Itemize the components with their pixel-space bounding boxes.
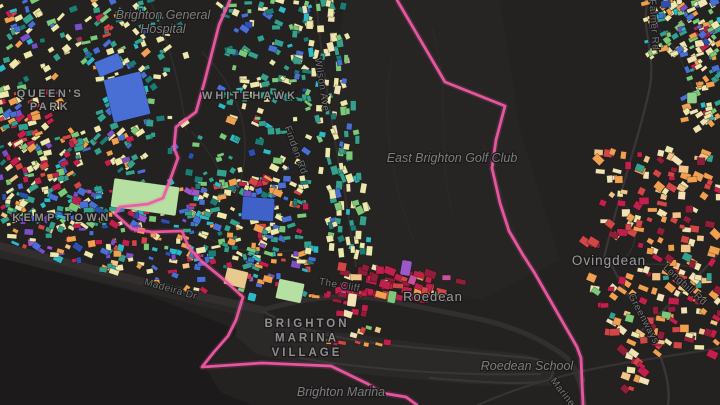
building [359, 216, 367, 226]
building [308, 40, 315, 47]
building [329, 243, 335, 251]
building [661, 0, 671, 8]
building [114, 72, 119, 76]
building [609, 328, 619, 336]
building [297, 260, 306, 264]
building [442, 275, 451, 280]
building [661, 311, 671, 319]
building [153, 74, 161, 79]
building [163, 67, 170, 72]
building [7, 234, 17, 239]
building [209, 258, 216, 265]
building [356, 172, 362, 180]
building [344, 131, 349, 138]
building [189, 203, 196, 207]
building [99, 267, 107, 273]
building [350, 246, 355, 253]
building [308, 257, 316, 262]
building [638, 242, 644, 248]
building [74, 23, 83, 31]
building [2, 194, 6, 200]
building [350, 274, 361, 280]
building [363, 342, 369, 347]
cyan-building [247, 292, 257, 302]
building [346, 123, 352, 130]
building [199, 199, 205, 205]
building [128, 257, 134, 262]
building [697, 81, 703, 85]
building [700, 102, 706, 108]
building [366, 246, 373, 256]
building [673, 342, 682, 349]
building [652, 306, 658, 314]
building [657, 149, 665, 157]
building [707, 273, 712, 281]
building [56, 205, 64, 211]
building [251, 242, 256, 249]
map-viewport[interactable]: QUEEN'SPARKWHITEHAWKKEMP TOWNBRIGHTONMAR… [0, 0, 720, 405]
building [117, 244, 125, 252]
building [625, 162, 631, 170]
building [292, 30, 298, 37]
blue-block-whitehawk [241, 196, 275, 221]
map-canvas[interactable]: QUEEN'SPARKWHITEHAWKKEMP TOWNBRIGHTONMAR… [0, 0, 720, 405]
building [626, 366, 635, 373]
building [687, 176, 697, 182]
cream-accent-roedean [347, 293, 358, 307]
building [281, 258, 286, 262]
building [615, 176, 623, 183]
building [45, 233, 52, 238]
building [141, 237, 147, 244]
building [681, 307, 688, 314]
building [276, 273, 281, 279]
building [146, 119, 154, 126]
building [247, 9, 251, 13]
building [297, 213, 307, 218]
label-brighton-marina: Brighton Marina [297, 385, 385, 399]
building [167, 116, 172, 120]
building [146, 268, 153, 274]
building [272, 78, 279, 83]
building [339, 141, 344, 147]
building [608, 287, 615, 291]
building [23, 176, 29, 183]
building [383, 339, 391, 345]
label-queens-park: QUEEN'S [17, 88, 84, 100]
building [77, 37, 82, 42]
building [625, 314, 635, 323]
building [366, 237, 372, 243]
building [93, 7, 100, 13]
building [248, 149, 256, 157]
building [680, 325, 689, 333]
building [325, 148, 330, 158]
building [350, 101, 356, 111]
building [52, 172, 59, 178]
building [132, 240, 137, 246]
label-ovingdean: Ovingdean [572, 253, 646, 268]
building [374, 326, 381, 333]
building [174, 225, 180, 228]
building [87, 190, 92, 194]
building [226, 48, 236, 55]
building [76, 257, 82, 264]
building [317, 25, 324, 32]
building [237, 167, 243, 173]
building [637, 152, 642, 157]
label-east-brighton-golf-club: East Brighton Golf Club [387, 151, 518, 165]
building [697, 158, 705, 166]
building [14, 26, 21, 33]
building [694, 345, 704, 350]
building [151, 132, 156, 137]
building [197, 277, 206, 283]
building [620, 189, 628, 194]
label-brighton-general-hospital: Hospital [140, 22, 186, 36]
building [639, 197, 649, 205]
building [355, 230, 362, 239]
building [289, 79, 297, 83]
label-queens-park: PARK [30, 101, 70, 113]
green-accent-roedean [387, 290, 397, 303]
building [275, 127, 281, 134]
building [232, 245, 238, 250]
building [620, 151, 626, 159]
building [678, 165, 689, 173]
building [338, 248, 345, 258]
building [29, 238, 36, 242]
building [625, 224, 631, 230]
building [94, 186, 102, 192]
building [293, 117, 298, 122]
building [346, 184, 351, 192]
building [283, 176, 291, 182]
building [255, 117, 261, 121]
building [278, 182, 287, 189]
building [195, 183, 200, 189]
building [277, 253, 282, 256]
building [87, 240, 96, 248]
building [208, 250, 216, 257]
building [95, 195, 101, 200]
building [273, 157, 283, 164]
building [244, 1, 252, 5]
building [325, 0, 331, 7]
building [176, 238, 181, 244]
building [318, 167, 324, 175]
building [240, 79, 250, 84]
building [685, 205, 693, 213]
building [644, 40, 649, 44]
building [343, 143, 350, 150]
label-brighton-general-hospital: Brighton General [116, 8, 212, 22]
building [156, 115, 165, 122]
building [185, 211, 192, 216]
building [293, 0, 299, 5]
building [350, 225, 357, 231]
building [376, 266, 384, 274]
building [120, 228, 125, 233]
green-triangle-east [687, 93, 697, 104]
building [331, 113, 336, 119]
building [336, 310, 344, 316]
building [95, 240, 102, 245]
building [300, 181, 308, 185]
building [334, 85, 342, 95]
building [656, 293, 664, 302]
building [668, 306, 676, 312]
building [425, 276, 432, 283]
label-brighton-marina-village: BRIGHTON [264, 318, 349, 330]
building [695, 275, 702, 281]
building [306, 21, 313, 29]
building [24, 229, 33, 236]
label-whitehawk: WHITEHAWK [202, 90, 298, 102]
building [344, 55, 348, 63]
building [40, 38, 46, 43]
building [216, 169, 227, 177]
building [293, 251, 298, 257]
building [648, 208, 658, 212]
building [668, 244, 675, 251]
building [293, 200, 298, 207]
building [640, 337, 648, 344]
building [182, 263, 190, 269]
building [248, 258, 255, 262]
building [148, 98, 155, 104]
purple-building-roedean [400, 260, 412, 277]
building [267, 128, 274, 135]
building [341, 78, 347, 84]
label-roedean-school: Roedean School [481, 359, 575, 373]
building [283, 236, 291, 241]
building [258, 121, 266, 127]
building [40, 172, 46, 177]
building [393, 283, 404, 289]
building [327, 8, 334, 17]
building [144, 244, 149, 251]
building [319, 131, 326, 137]
building [337, 226, 342, 233]
building [353, 129, 360, 135]
building [232, 65, 237, 71]
building [43, 189, 49, 194]
label-roedean: Roedean [403, 289, 463, 304]
building [679, 224, 685, 229]
building [302, 5, 308, 13]
label-brighton-marina-village: MARINA [275, 333, 339, 345]
building [678, 191, 686, 200]
building [329, 189, 337, 199]
building [595, 169, 605, 174]
building [681, 245, 691, 253]
building [270, 0, 276, 4]
building [304, 247, 311, 255]
building [312, 295, 320, 299]
building [164, 245, 169, 249]
building [600, 303, 608, 309]
building [171, 254, 176, 260]
building [646, 248, 653, 255]
building [313, 246, 318, 253]
building [301, 74, 306, 80]
building [308, 47, 314, 57]
building [346, 209, 351, 215]
building [337, 262, 347, 272]
building [355, 135, 360, 144]
building [232, 255, 239, 261]
building [326, 235, 334, 243]
building [652, 273, 661, 281]
building [697, 235, 704, 241]
building [303, 203, 309, 210]
label-kemp-town: KEMP TOWN [12, 212, 112, 224]
building [668, 297, 679, 305]
building [618, 276, 626, 285]
building [666, 32, 671, 37]
building [337, 59, 343, 66]
building [102, 225, 108, 229]
building [716, 194, 720, 201]
building [303, 37, 309, 42]
label-brighton-marina-village: VILLAGE [272, 347, 343, 359]
building [361, 305, 368, 312]
building [346, 108, 350, 114]
building [17, 183, 23, 190]
building [89, 231, 93, 236]
building [149, 216, 157, 223]
building [271, 259, 277, 264]
building [352, 199, 360, 206]
building [192, 142, 200, 147]
building [339, 162, 344, 170]
building [44, 198, 50, 202]
building [227, 232, 234, 238]
building [339, 2, 347, 10]
building [185, 169, 193, 177]
building [346, 151, 353, 160]
building [672, 212, 681, 218]
building [6, 222, 11, 226]
building [316, 3, 321, 11]
building [303, 13, 309, 22]
building [607, 175, 613, 183]
building [359, 242, 365, 248]
building [617, 200, 626, 207]
